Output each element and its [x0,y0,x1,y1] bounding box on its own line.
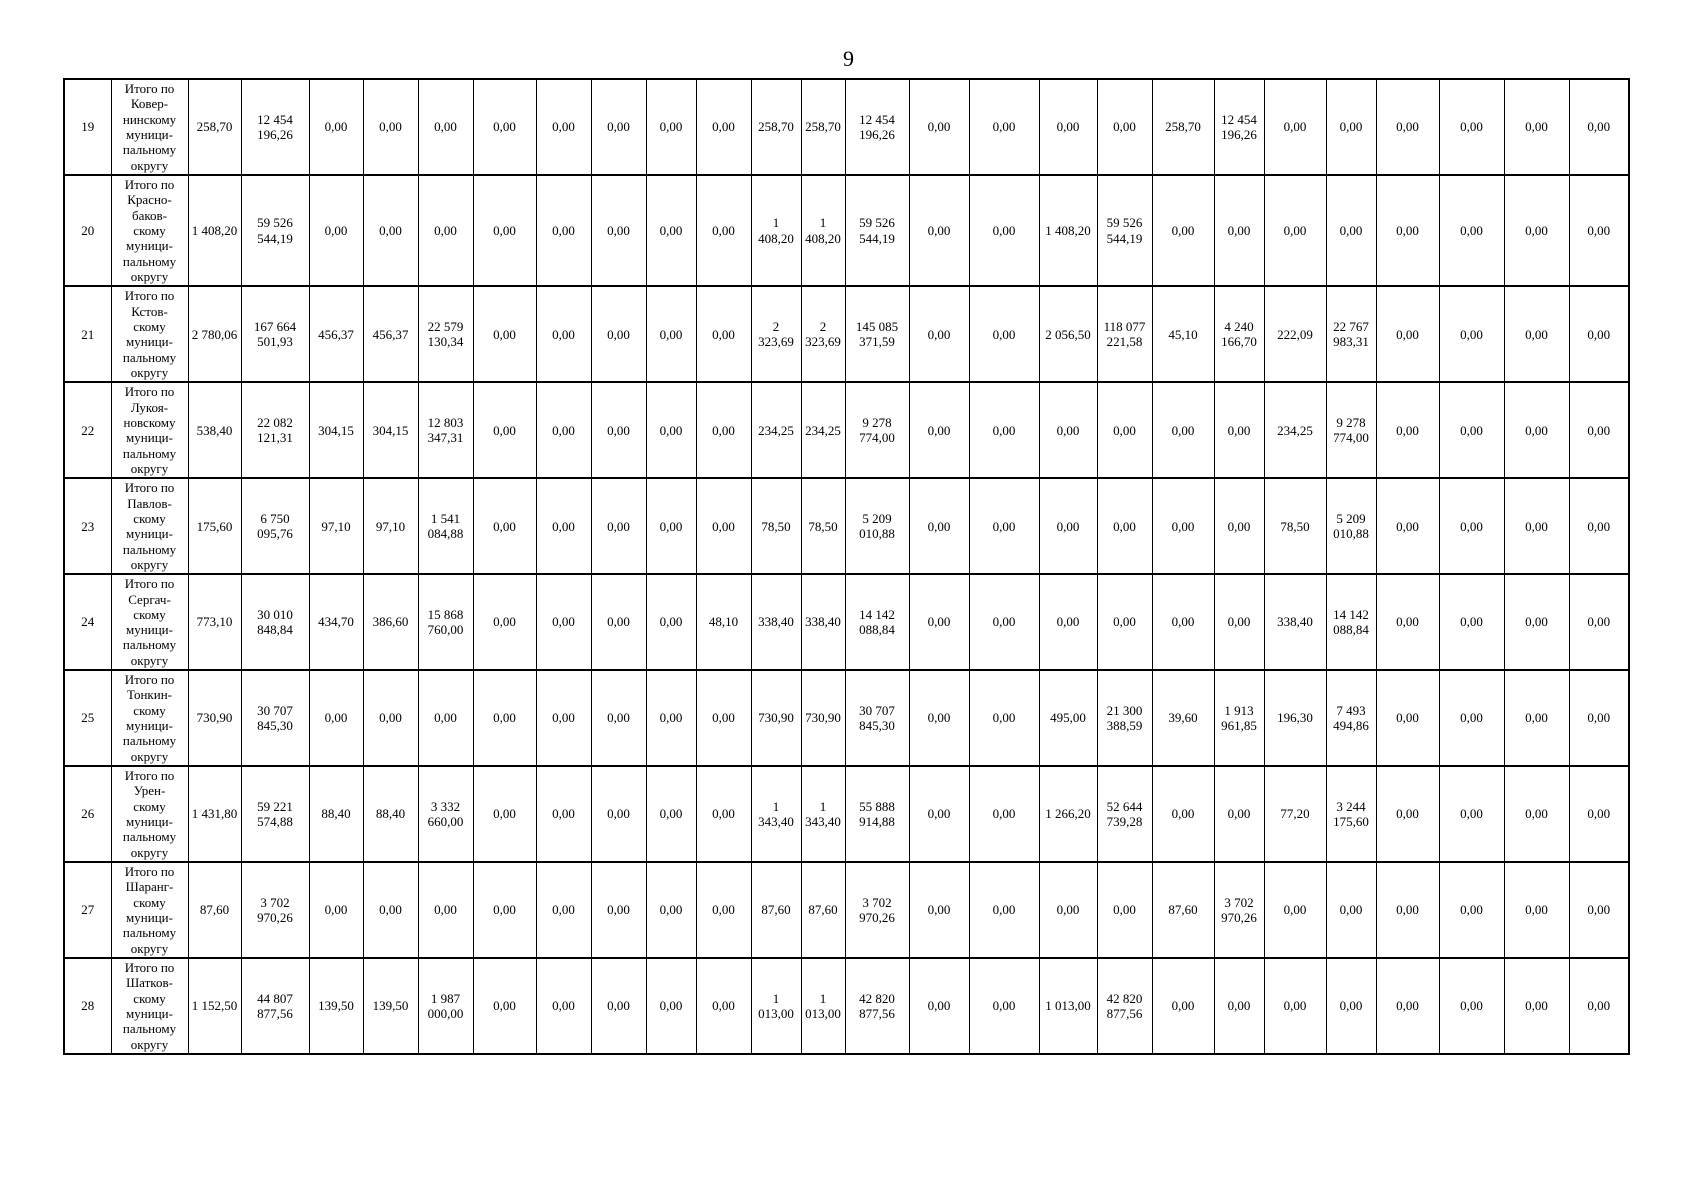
value-cell: 0,00 [1504,382,1569,478]
value-cell: 234,25 [751,382,801,478]
value-cell: 87,60 [1152,862,1214,958]
value-cell: 0,00 [1439,670,1504,766]
value-cell: 0,00 [1152,382,1214,478]
value-cell: 456,37 [363,286,418,382]
value-cell: 12 454 196,26 [845,79,909,175]
value-cell: 0,00 [1214,958,1264,1054]
value-cell: 0,00 [473,382,536,478]
value-cell: 0,00 [1214,478,1264,574]
value-cell: 0,00 [1039,478,1097,574]
value-cell: 0,00 [1326,79,1376,175]
value-cell: 434,70 [309,574,363,670]
row-number-cell: 26 [64,766,111,862]
value-cell: 0,00 [1504,862,1569,958]
value-cell: 730,90 [751,670,801,766]
value-cell: 0,00 [969,286,1039,382]
value-cell: 0,00 [1039,574,1097,670]
value-cell: 0,00 [1376,175,1439,286]
value-cell: 0,00 [1214,175,1264,286]
value-cell: 0,00 [473,862,536,958]
municipal-totals-table: 19Итого по Ковер- нинскому муници- пальн… [63,78,1630,1055]
value-cell: 97,10 [363,478,418,574]
value-cell: 0,00 [591,478,646,574]
row-number-cell: 22 [64,382,111,478]
value-cell: 59 526 544,19 [1097,175,1152,286]
value-cell: 0,00 [473,478,536,574]
value-cell: 22 082 121,31 [241,382,309,478]
value-cell: 3 702 970,26 [241,862,309,958]
value-cell: 0,00 [1376,766,1439,862]
value-cell: 0,00 [473,286,536,382]
value-cell: 1 266,20 [1039,766,1097,862]
value-cell: 0,00 [696,175,751,286]
value-cell: 0,00 [1569,478,1629,574]
value-cell: 5 209 010,88 [1326,478,1376,574]
value-cell: 12 454 196,26 [241,79,309,175]
value-cell: 0,00 [536,382,591,478]
value-cell: 0,00 [969,382,1039,478]
value-cell: 87,60 [801,862,845,958]
value-cell: 0,00 [1504,574,1569,670]
district-name-cell: Итого по Павлов- скому муници- пальному … [111,478,188,574]
value-cell: 0,00 [909,175,969,286]
value-cell: 0,00 [418,175,473,286]
value-cell: 78,50 [751,478,801,574]
value-cell: 0,00 [536,958,591,1054]
value-cell: 0,00 [363,175,418,286]
value-cell: 45,10 [1152,286,1214,382]
value-cell: 0,00 [909,862,969,958]
value-cell: 0,00 [473,766,536,862]
value-cell: 1 408,20 [801,175,845,286]
value-cell: 0,00 [1504,286,1569,382]
value-cell: 0,00 [1152,478,1214,574]
value-cell: 0,00 [696,79,751,175]
value-cell: 730,90 [188,670,241,766]
table-row: 26Итого по Урен- скому муници- пальному … [64,766,1629,862]
value-cell: 0,00 [363,670,418,766]
value-cell: 9 278 774,00 [1326,382,1376,478]
value-cell: 145 085 371,59 [845,286,909,382]
value-cell: 495,00 [1039,670,1097,766]
value-cell: 258,70 [801,79,845,175]
value-cell: 0,00 [646,175,696,286]
row-number-cell: 25 [64,670,111,766]
value-cell: 44 807 877,56 [241,958,309,1054]
value-cell: 0,00 [1504,79,1569,175]
value-cell: 0,00 [309,862,363,958]
value-cell: 21 300 388,59 [1097,670,1152,766]
value-cell: 2 323,69 [801,286,845,382]
value-cell: 167 664 501,93 [241,286,309,382]
value-cell: 1 541 084,88 [418,478,473,574]
value-cell: 0,00 [969,574,1039,670]
value-cell: 0,00 [1376,958,1439,1054]
value-cell: 0,00 [1214,574,1264,670]
value-cell: 0,00 [473,670,536,766]
value-cell: 0,00 [909,79,969,175]
value-cell: 0,00 [1264,862,1326,958]
value-cell: 0,00 [1569,766,1629,862]
value-cell: 0,00 [1569,79,1629,175]
value-cell: 6 750 095,76 [241,478,309,574]
value-cell: 0,00 [1504,958,1569,1054]
page-number: 9 [0,46,1697,72]
value-cell: 338,40 [751,574,801,670]
value-cell: 3 244 175,60 [1326,766,1376,862]
value-cell: 9 278 774,00 [845,382,909,478]
district-name-cell: Итого по Шаранг- скому муници- пальному … [111,862,188,958]
value-cell: 0,00 [696,286,751,382]
district-name-cell: Итого по Кстов- скому муници- пальному о… [111,286,188,382]
value-cell: 0,00 [1214,766,1264,862]
value-cell: 0,00 [1439,766,1504,862]
value-cell: 1 987 000,00 [418,958,473,1054]
value-cell: 4 240 166,70 [1214,286,1264,382]
value-cell: 1 013,00 [1039,958,1097,1054]
value-cell: 15 868 760,00 [418,574,473,670]
value-cell: 1 013,00 [801,958,845,1054]
value-cell: 0,00 [309,79,363,175]
value-cell: 0,00 [1569,382,1629,478]
district-name-cell: Итого по Лукоя- новскому муници- пальном… [111,382,188,478]
row-number-cell: 20 [64,175,111,286]
value-cell: 87,60 [188,862,241,958]
value-cell: 0,00 [909,382,969,478]
value-cell: 78,50 [1264,478,1326,574]
value-cell: 0,00 [309,670,363,766]
value-cell: 0,00 [696,382,751,478]
value-cell: 0,00 [1504,478,1569,574]
value-cell: 0,00 [536,175,591,286]
value-cell: 0,00 [1569,574,1629,670]
value-cell: 234,25 [801,382,845,478]
district-name-cell: Итого по Шатков- скому муници- пальному … [111,958,188,1054]
value-cell: 0,00 [969,478,1039,574]
value-cell: 3 702 970,26 [1214,862,1264,958]
value-cell: 0,00 [536,766,591,862]
district-name-cell: Итого по Сергач- скому муници- пальному … [111,574,188,670]
value-cell: 0,00 [1376,478,1439,574]
value-cell: 258,70 [188,79,241,175]
value-cell: 1 152,50 [188,958,241,1054]
value-cell: 0,00 [591,574,646,670]
value-cell: 55 888 914,88 [845,766,909,862]
value-cell: 0,00 [1439,382,1504,478]
value-cell: 1 408,20 [751,175,801,286]
value-cell: 0,00 [591,862,646,958]
value-cell: 2 780,06 [188,286,241,382]
value-cell: 386,60 [363,574,418,670]
value-cell: 0,00 [696,478,751,574]
value-cell: 1 913 961,85 [1214,670,1264,766]
value-cell: 0,00 [1569,286,1629,382]
table-row: 21Итого по Кстов- скому муници- пальному… [64,286,1629,382]
value-cell: 0,00 [473,79,536,175]
value-cell: 0,00 [969,862,1039,958]
value-cell: 0,00 [646,79,696,175]
value-cell: 0,00 [969,766,1039,862]
value-cell: 0,00 [1326,862,1376,958]
value-cell: 0,00 [1264,175,1326,286]
value-cell: 139,50 [363,958,418,1054]
value-cell: 0,00 [646,766,696,862]
value-cell: 0,00 [536,286,591,382]
value-cell: 0,00 [1039,79,1097,175]
value-cell: 88,40 [363,766,418,862]
value-cell: 0,00 [969,670,1039,766]
table-row: 20Итого по Красно- баков- скому муници- … [64,175,1629,286]
value-cell: 3 332 660,00 [418,766,473,862]
value-cell: 0,00 [1376,286,1439,382]
value-cell: 0,00 [591,175,646,286]
value-cell: 0,00 [363,79,418,175]
table-row: 19Итого по Ковер- нинскому муници- пальн… [64,79,1629,175]
value-cell: 97,10 [309,478,363,574]
value-cell: 730,90 [801,670,845,766]
value-cell: 139,50 [309,958,363,1054]
value-cell: 0,00 [909,958,969,1054]
value-cell: 0,00 [1569,175,1629,286]
value-cell: 0,00 [646,478,696,574]
value-cell: 22 579 130,34 [418,286,473,382]
value-cell: 0,00 [1097,382,1152,478]
value-cell: 118 077 221,58 [1097,286,1152,382]
value-cell: 0,00 [1152,958,1214,1054]
value-cell: 0,00 [1039,382,1097,478]
row-number-cell: 24 [64,574,111,670]
value-cell: 0,00 [1439,958,1504,1054]
value-cell: 0,00 [1376,574,1439,670]
value-cell: 0,00 [536,478,591,574]
value-cell: 258,70 [1152,79,1214,175]
value-cell: 196,30 [1264,670,1326,766]
value-cell: 0,00 [1152,175,1214,286]
value-cell: 0,00 [1569,862,1629,958]
value-cell: 0,00 [591,382,646,478]
value-cell: 0,00 [696,958,751,1054]
document-page: 9 19Итого по Ковер- нинскому муници- пал… [0,0,1697,1200]
value-cell: 0,00 [309,175,363,286]
value-cell: 22 767 983,31 [1326,286,1376,382]
value-cell: 14 142 088,84 [1326,574,1376,670]
value-cell: 0,00 [1264,79,1326,175]
value-cell: 456,37 [309,286,363,382]
value-cell: 12 454 196,26 [1214,79,1264,175]
district-name-cell: Итого по Тонкин- скому муници- пальному … [111,670,188,766]
value-cell: 1 408,20 [188,175,241,286]
value-cell: 0,00 [536,670,591,766]
value-cell: 304,15 [309,382,363,478]
value-cell: 1 013,00 [751,958,801,1054]
value-cell: 0,00 [1097,862,1152,958]
value-cell: 5 209 010,88 [845,478,909,574]
value-cell: 0,00 [536,79,591,175]
value-cell: 0,00 [536,574,591,670]
value-cell: 0,00 [1439,175,1504,286]
value-cell: 30 707 845,30 [845,670,909,766]
value-cell: 1 408,20 [1039,175,1097,286]
value-cell: 59 221 574,88 [241,766,309,862]
value-cell: 0,00 [1439,862,1504,958]
value-cell: 0,00 [473,574,536,670]
value-cell: 78,50 [801,478,845,574]
value-cell: 0,00 [909,766,969,862]
value-cell: 222,09 [1264,286,1326,382]
value-cell: 0,00 [418,862,473,958]
value-cell: 0,00 [696,862,751,958]
table-row: 22Итого по Лукоя- новскому муници- пальн… [64,382,1629,478]
value-cell: 3 702 970,26 [845,862,909,958]
value-cell: 0,00 [969,175,1039,286]
value-cell: 88,40 [309,766,363,862]
value-cell: 0,00 [1504,670,1569,766]
value-cell: 0,00 [909,670,969,766]
value-cell: 0,00 [1326,958,1376,1054]
value-cell: 0,00 [646,670,696,766]
value-cell: 14 142 088,84 [845,574,909,670]
value-cell: 0,00 [646,862,696,958]
value-cell: 175,60 [188,478,241,574]
value-cell: 0,00 [969,79,1039,175]
value-cell: 0,00 [646,286,696,382]
value-cell: 0,00 [646,574,696,670]
value-cell: 0,00 [1376,382,1439,478]
value-cell: 0,00 [1326,175,1376,286]
value-cell: 0,00 [1039,862,1097,958]
value-cell: 0,00 [909,574,969,670]
value-cell: 0,00 [1097,574,1152,670]
value-cell: 0,00 [1439,478,1504,574]
value-cell: 0,00 [591,958,646,1054]
value-cell: 0,00 [591,766,646,862]
value-cell: 0,00 [1376,670,1439,766]
value-cell: 338,40 [801,574,845,670]
value-cell: 0,00 [1152,574,1214,670]
value-cell: 0,00 [1214,382,1264,478]
value-cell: 59 526 544,19 [845,175,909,286]
value-cell: 338,40 [1264,574,1326,670]
value-cell: 0,00 [696,766,751,862]
value-cell: 0,00 [536,862,591,958]
value-cell: 0,00 [1569,958,1629,1054]
row-number-cell: 28 [64,958,111,1054]
value-cell: 0,00 [646,382,696,478]
table-row: 28Итого по Шатков- скому муници- пальном… [64,958,1629,1054]
value-cell: 0,00 [473,958,536,1054]
value-cell: 0,00 [1439,574,1504,670]
value-cell: 48,10 [696,574,751,670]
value-cell: 0,00 [1504,766,1569,862]
value-cell: 0,00 [591,79,646,175]
value-cell: 258,70 [751,79,801,175]
value-cell: 7 493 494,86 [1326,670,1376,766]
value-cell: 234,25 [1264,382,1326,478]
row-number-cell: 19 [64,79,111,175]
value-cell: 0,00 [1097,478,1152,574]
value-cell: 304,15 [363,382,418,478]
value-cell: 42 820 877,56 [1097,958,1152,1054]
value-cell: 0,00 [1152,766,1214,862]
value-cell: 0,00 [1264,958,1326,1054]
row-number-cell: 23 [64,478,111,574]
value-cell: 59 526 544,19 [241,175,309,286]
row-number-cell: 21 [64,286,111,382]
value-cell: 0,00 [909,478,969,574]
value-cell: 0,00 [1376,862,1439,958]
table-row: 24Итого по Сергач- скому муници- пальном… [64,574,1629,670]
value-cell: 1 343,40 [801,766,845,862]
value-cell: 538,40 [188,382,241,478]
value-cell: 42 820 877,56 [845,958,909,1054]
value-cell: 0,00 [363,862,418,958]
value-cell: 0,00 [591,670,646,766]
value-cell: 1 343,40 [751,766,801,862]
value-cell: 0,00 [1097,79,1152,175]
value-cell: 0,00 [696,670,751,766]
value-cell: 30 010 848,84 [241,574,309,670]
value-cell: 0,00 [646,958,696,1054]
value-cell: 0,00 [1376,79,1439,175]
value-cell: 0,00 [1439,79,1504,175]
value-cell: 39,60 [1152,670,1214,766]
value-cell: 773,10 [188,574,241,670]
value-cell: 0,00 [1569,670,1629,766]
value-cell: 77,20 [1264,766,1326,862]
value-cell: 0,00 [418,670,473,766]
row-number-cell: 27 [64,862,111,958]
value-cell: 0,00 [418,79,473,175]
value-cell: 30 707 845,30 [241,670,309,766]
table-row: 23Итого по Павлов- скому муници- пальном… [64,478,1629,574]
value-cell: 0,00 [591,286,646,382]
value-cell: 0,00 [1504,175,1569,286]
value-cell: 2 323,69 [751,286,801,382]
district-name-cell: Итого по Урен- скому муници- пальному ок… [111,766,188,862]
district-name-cell: Итого по Ковер- нинскому муници- пальном… [111,79,188,175]
value-cell: 87,60 [751,862,801,958]
value-cell: 0,00 [969,958,1039,1054]
value-cell: 52 644 739,28 [1097,766,1152,862]
value-cell: 0,00 [473,175,536,286]
value-cell: 2 056,50 [1039,286,1097,382]
value-cell: 0,00 [1439,286,1504,382]
value-cell: 12 803 347,31 [418,382,473,478]
value-cell: 0,00 [909,286,969,382]
district-name-cell: Итого по Красно- баков- скому муници- па… [111,175,188,286]
table-row: 27Итого по Шаранг- скому муници- пальном… [64,862,1629,958]
table-body: 19Итого по Ковер- нинскому муници- пальн… [64,79,1629,1054]
table-row: 25Итого по Тонкин- скому муници- пальном… [64,670,1629,766]
value-cell: 1 431,80 [188,766,241,862]
